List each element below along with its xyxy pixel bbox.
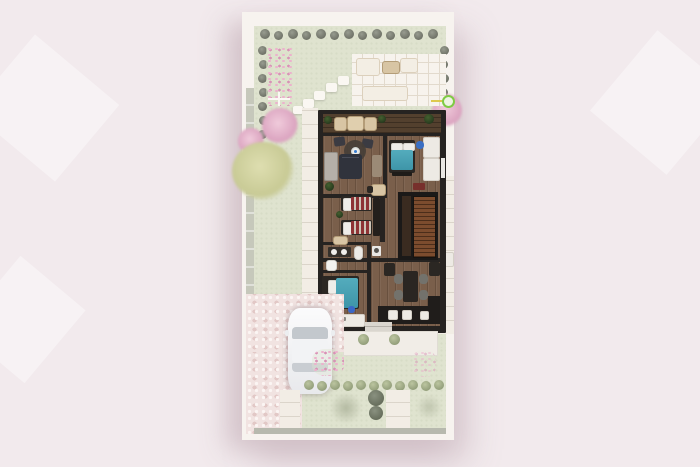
- wall: [380, 198, 385, 242]
- bush-row: [421, 381, 431, 391]
- car-mirror: [285, 330, 289, 336]
- terrace-chair: [364, 117, 377, 131]
- sink: [331, 249, 337, 255]
- bush-row: [408, 380, 418, 390]
- trellis: [278, 92, 280, 106]
- tv-console: [372, 155, 382, 177]
- bed-bench: [392, 172, 412, 176]
- hedge-bush: [372, 29, 382, 39]
- sink: [341, 249, 347, 255]
- hedge-bush: [358, 31, 367, 40]
- terrace-table: [347, 116, 364, 131]
- pink-flower-patch: [312, 349, 344, 376]
- street-strip: [254, 428, 446, 434]
- front-path: [280, 390, 300, 430]
- porch-bush: [389, 334, 400, 345]
- stair-treads: [413, 196, 436, 258]
- sideboard: [384, 263, 395, 276]
- dining-chair: [394, 274, 403, 284]
- bush-row: [356, 380, 366, 390]
- plant: [325, 182, 334, 191]
- outdoor-sofa: [400, 58, 418, 73]
- site-plan-render: [0, 0, 700, 467]
- background-shape: [590, 30, 700, 175]
- hedge-bush: [274, 31, 283, 40]
- bush-row: [304, 380, 314, 390]
- wardrobe: [423, 158, 440, 181]
- hedge-bush: [386, 31, 395, 40]
- terrace-plant: [424, 114, 434, 124]
- blue-chair: [416, 141, 424, 149]
- table-decor: [354, 150, 357, 153]
- kitchen-counter: [428, 296, 440, 308]
- background-shape: [0, 34, 119, 181]
- terrace-plant: [324, 116, 332, 124]
- outdoor-table: [382, 61, 400, 74]
- dining-chair: [419, 274, 428, 284]
- hedge-bush: [302, 31, 311, 40]
- cabinet: [429, 262, 440, 276]
- yellow-tree: [232, 142, 294, 200]
- bush-row: [343, 381, 353, 391]
- kids-bed-red-blanket: [351, 221, 371, 234]
- appliance-stove: [402, 310, 412, 320]
- bush-row: [317, 381, 327, 391]
- terrace-chair: [334, 117, 347, 131]
- bush-row: [382, 380, 392, 390]
- stepping-stone: [314, 91, 325, 100]
- desk: [423, 137, 440, 158]
- hedge-bush: [288, 29, 298, 39]
- chair: [367, 186, 373, 193]
- car-mirror: [331, 330, 335, 336]
- porch-bush: [358, 334, 369, 345]
- hedge-bush: [330, 31, 339, 40]
- wall: [367, 242, 371, 328]
- hedge-bush: [316, 29, 326, 39]
- stepping-stone: [338, 76, 349, 85]
- hose-marker: [442, 95, 455, 108]
- side-table: [371, 184, 386, 196]
- toilet: [326, 260, 337, 271]
- bed-blanket-teal: [391, 150, 413, 170]
- kids-bed-red-blanket: [351, 197, 371, 210]
- dining-chair: [394, 290, 403, 300]
- outdoor-sofa: [356, 58, 380, 76]
- hedge-bush: [414, 31, 423, 40]
- boiler: [354, 246, 363, 260]
- appliance-sink: [388, 310, 398, 320]
- dark-bush: [368, 390, 384, 406]
- desk: [333, 236, 348, 245]
- stepping-stone: [303, 99, 314, 108]
- hedge-bush: [428, 29, 438, 39]
- bush-row: [330, 380, 340, 390]
- dining-table: [403, 271, 418, 302]
- terrace-plant: [378, 115, 386, 123]
- appliance: [420, 311, 429, 320]
- sofa-cushion-line: [342, 157, 359, 158]
- hedge-bush: [400, 29, 410, 39]
- blue-pouf: [348, 306, 355, 313]
- wardrobe: [373, 198, 380, 236]
- dark-bush: [369, 406, 383, 420]
- front-path: [386, 390, 410, 430]
- armchair: [333, 136, 345, 146]
- bush-row: [434, 380, 444, 390]
- outdoor-sofa: [362, 86, 408, 101]
- background-shape: [0, 256, 86, 383]
- gray-tree: [330, 392, 362, 424]
- plant: [336, 211, 343, 218]
- cabinet: [324, 152, 338, 181]
- hedge-bush: [260, 29, 270, 39]
- pink-flower-patch: [412, 350, 436, 377]
- washer-door: [374, 248, 379, 253]
- stepping-stone: [326, 83, 337, 92]
- gray-tree: [416, 394, 442, 420]
- dining-chair: [419, 290, 428, 300]
- stair-flight-dark: [402, 196, 411, 256]
- hedge-bush: [344, 29, 354, 39]
- radiator: [441, 158, 445, 178]
- red-bench: [413, 183, 425, 190]
- car-windshield: [292, 327, 328, 339]
